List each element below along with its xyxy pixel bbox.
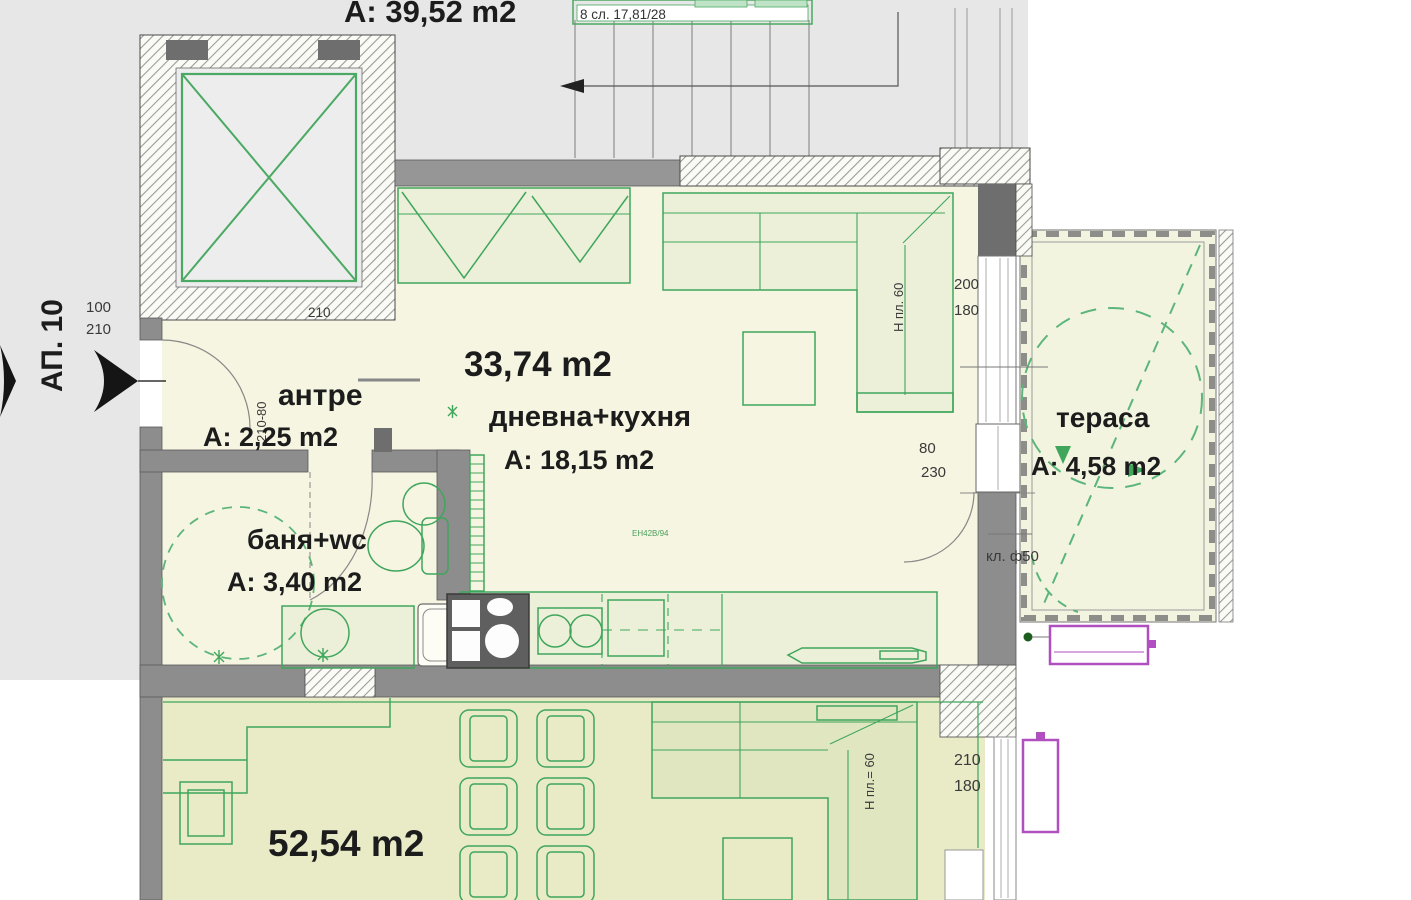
apartment-label: АП. 10: [36, 299, 69, 392]
antre-area: A: 2,25 m2: [203, 422, 338, 452]
elevator: [140, 35, 395, 320]
elevator-door-jamb-right: [318, 40, 360, 60]
dim-lower-window-h: 180: [954, 778, 981, 795]
dim-living-window-h: 180: [954, 302, 979, 319]
dim-living-window-w: 200: [954, 276, 979, 293]
dim-lower-window-w: 210: [954, 752, 981, 769]
radiator-nub: [1036, 732, 1045, 740]
ac-unit-label: кл. ф50: [986, 548, 1039, 565]
sofa-height-lower: Н пл.= 60: [862, 753, 877, 810]
right-top-wall-dark: [978, 184, 1016, 256]
lower-apartment-area: 52,54 m2: [268, 823, 424, 864]
ac-connection-dot: [1024, 633, 1033, 642]
stair-wall-solid: [395, 160, 680, 186]
living-total-area: 33,74 m2: [464, 345, 612, 384]
sofa-model-label: ЕН42В/94: [632, 529, 669, 538]
window-frame: [978, 256, 1016, 424]
sofa-height-living: Н пл. 60: [891, 283, 906, 332]
terrace-name: тераса: [1056, 402, 1150, 433]
right-wall-below-door: [978, 492, 1016, 665]
dim-terrace-door-w: 80: [919, 440, 936, 457]
dim-elevator: 210: [308, 305, 331, 320]
wardrobe-icon: [398, 188, 630, 283]
antre-passage-stub: [374, 428, 392, 452]
living-area: A: 18,15 m2: [504, 445, 654, 475]
common-area-left: [0, 0, 140, 680]
ac-unit-icon: [1050, 626, 1148, 664]
antre-name: антре: [278, 379, 363, 412]
bottom-wall: [140, 665, 985, 697]
lower-right-opening: [945, 850, 983, 900]
radiator-icon: [1023, 740, 1058, 832]
terrace-side-wall: [1219, 230, 1233, 622]
stove-burner-oval: [487, 598, 513, 616]
elevator-door-jamb-left: [166, 40, 208, 60]
left-wall-lower: [140, 427, 162, 900]
left-wall-upper: [140, 318, 162, 340]
dim-terrace-door-h: 230: [921, 464, 946, 481]
dim-entrance-width: 100: [86, 299, 111, 316]
lower-window-frame: [994, 737, 1016, 900]
upper-apartment-area: A: 39,52 m2: [344, 0, 516, 29]
stair-handrail-cap-2: [755, 0, 807, 7]
stove-burner-sq1: [452, 600, 480, 627]
stair-wall-hatched: [680, 156, 985, 186]
bathroom-name: баня+wc: [247, 524, 367, 555]
bath-kitchen-wall: [437, 450, 470, 600]
right-top-wall-strip: [1016, 184, 1032, 256]
right-top-wall-hatched: [940, 148, 1030, 184]
stove-burner-sq2: [452, 631, 480, 661]
stair-handrail-cap-1: [695, 0, 747, 7]
living-name: дневна+кухня: [489, 401, 691, 433]
floor-plan: АП. 10 A: 39,52 m2 8 сл. 17,81/28 100 21…: [0, 0, 1411, 900]
stairs-note: 8 сл. 17,81/28: [580, 7, 666, 22]
bathroom-area: A: 3,40 m2: [227, 567, 362, 597]
ac-unit-nub: [1148, 640, 1156, 648]
lower-window: [994, 737, 1016, 900]
antre-bath-wall-left: [140, 450, 308, 472]
dim-entrance-height: 210: [86, 321, 111, 338]
bottom-wall-hatched-patch: [305, 668, 375, 697]
stove-burner-round: [485, 624, 519, 658]
terrace-area: A: 4,58 m2: [1031, 451, 1161, 481]
